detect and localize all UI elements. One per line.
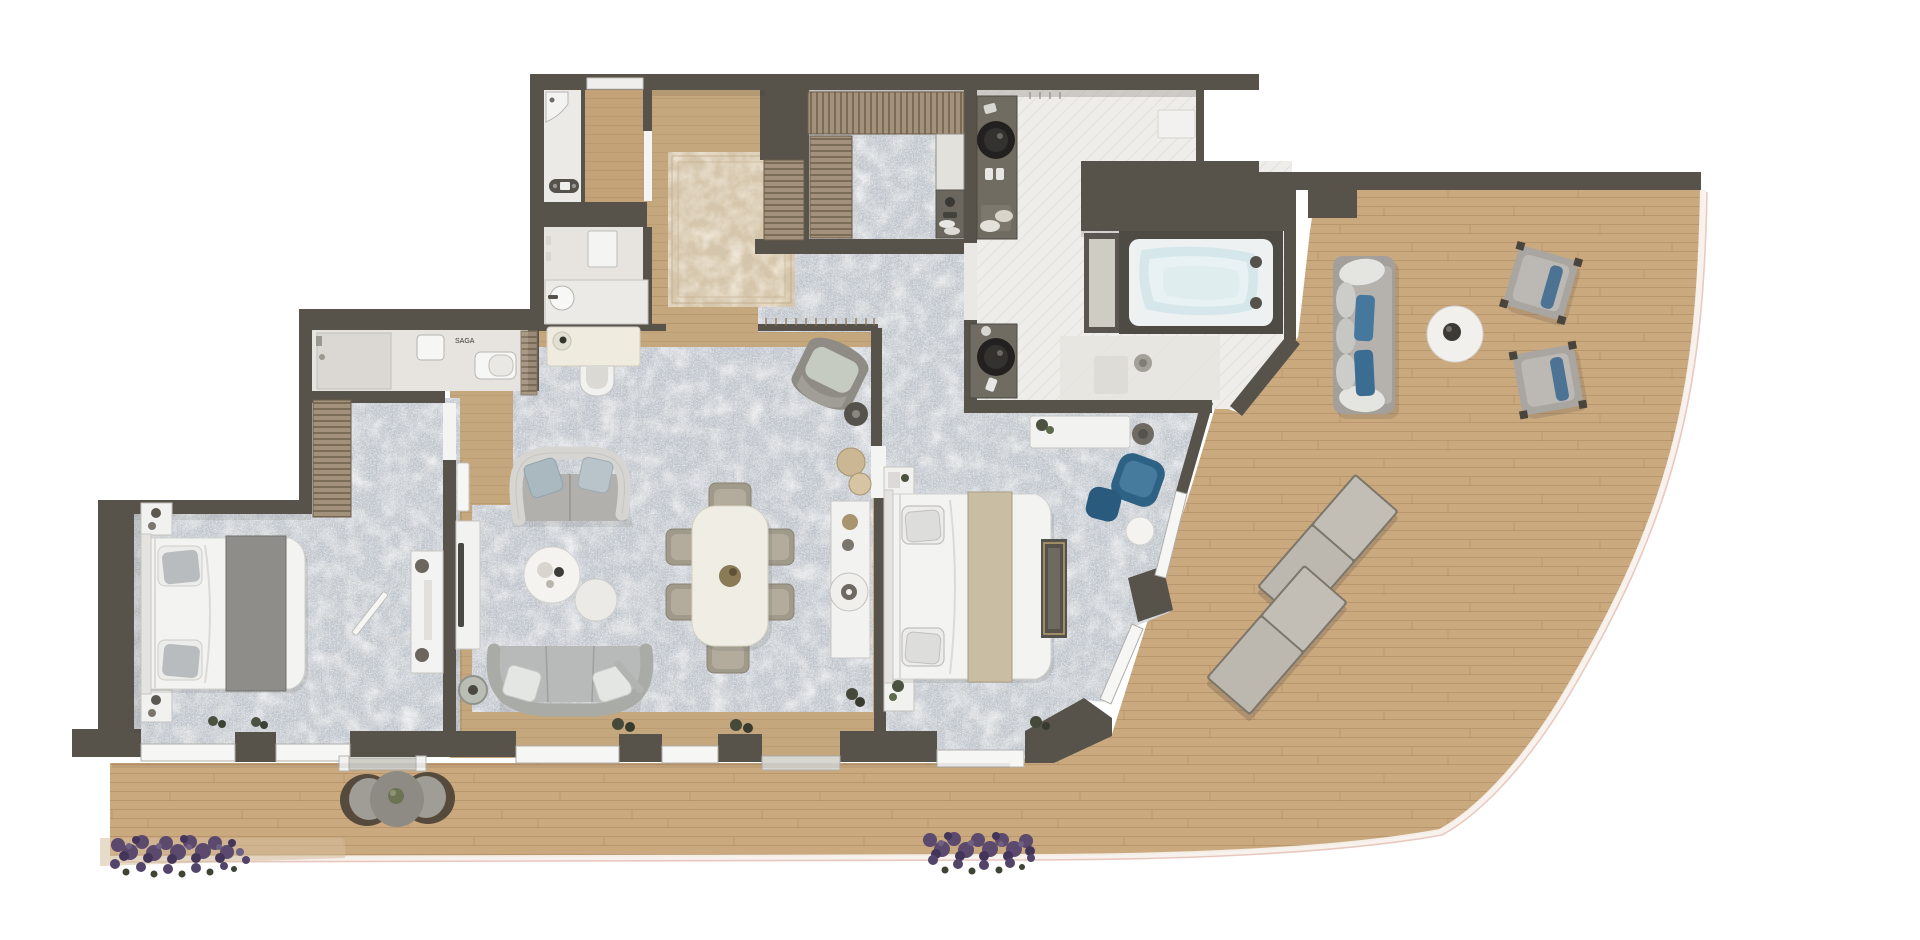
svg-text:SAGA: SAGA	[455, 338, 475, 345]
